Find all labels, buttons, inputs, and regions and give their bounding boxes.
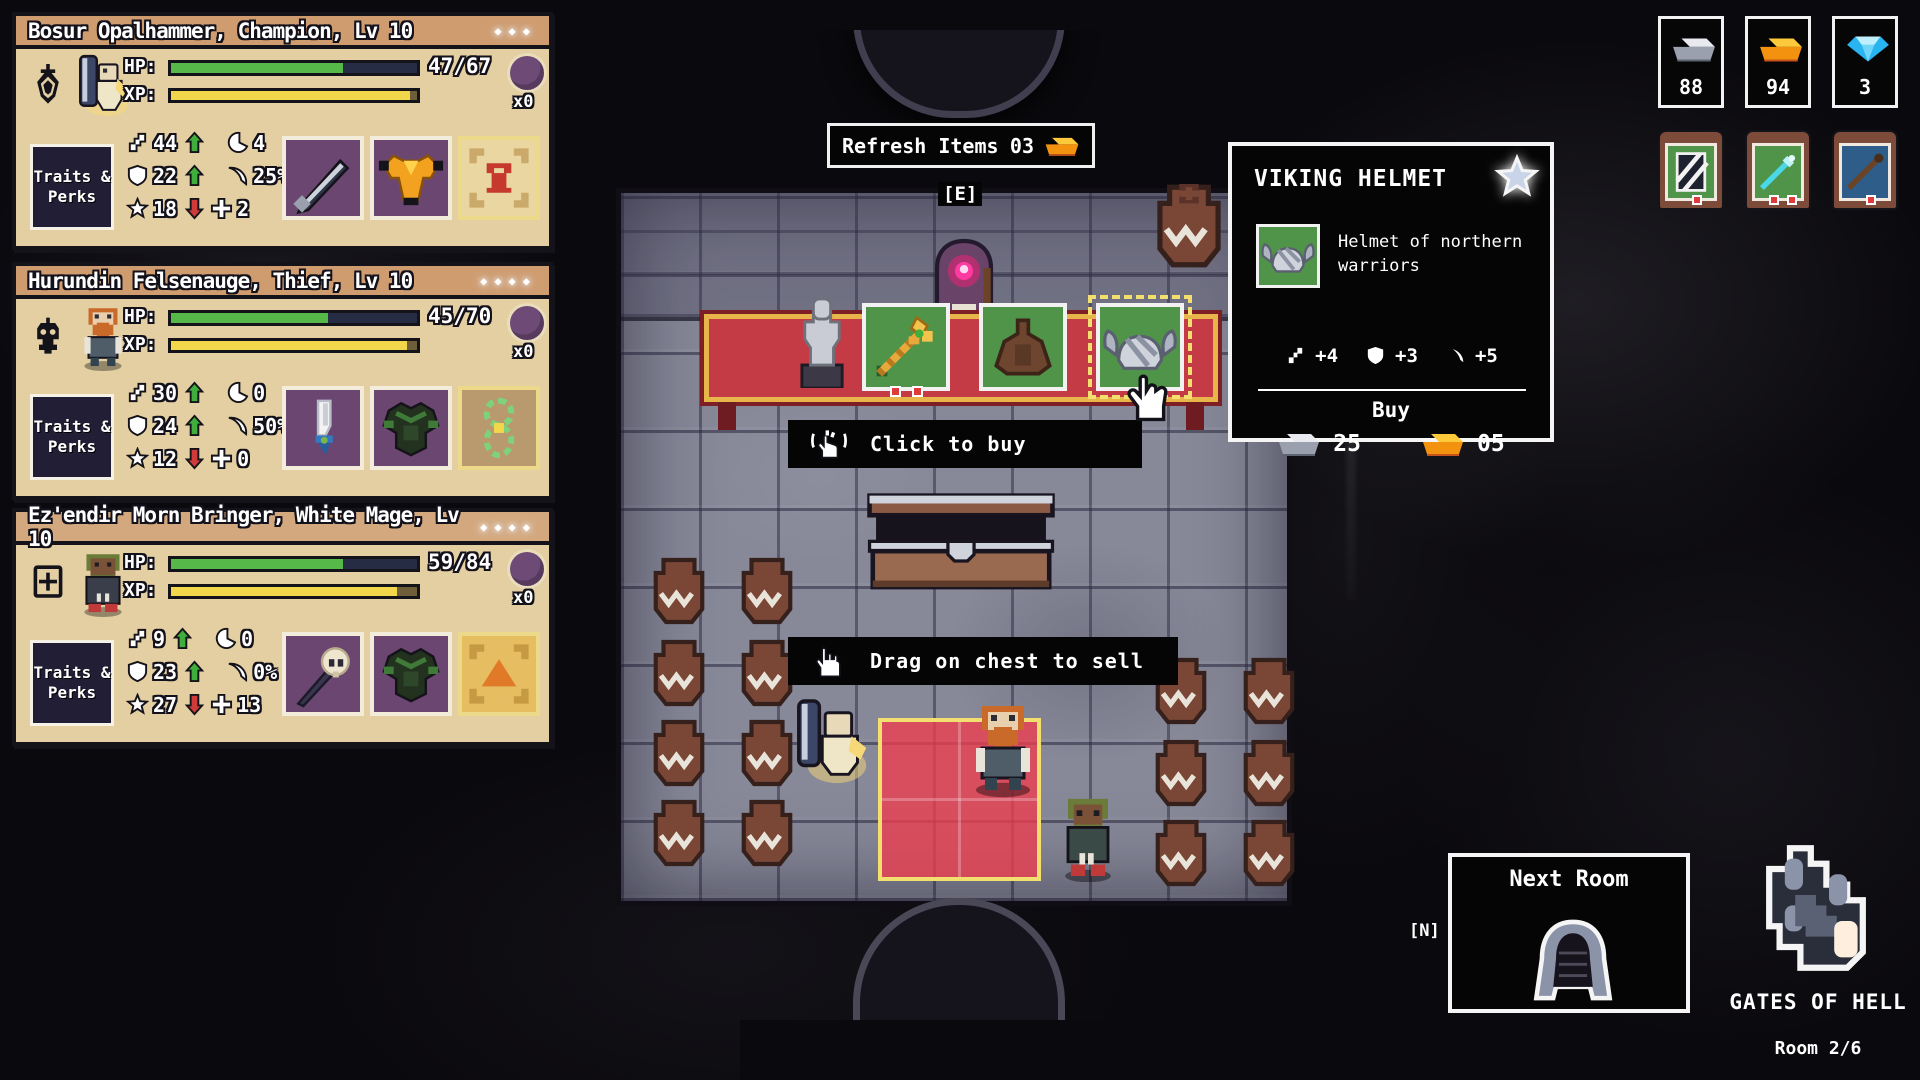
- up-arrow-icon: [183, 164, 206, 187]
- item-slot-dark-greatsword[interactable]: [282, 136, 364, 220]
- next-room-label: Next Room: [1452, 867, 1686, 892]
- crit-value: 0%: [253, 660, 277, 684]
- consumable-card-cyan-spear[interactable]: [1745, 130, 1811, 210]
- moves-value: 0: [241, 627, 253, 651]
- traits-perks-button[interactable]: Traits & Perks: [30, 144, 114, 230]
- heal-icon: [210, 693, 233, 716]
- party-panel-white-mage: Ez'endir Morn Bringer, White Mage, Lv 10…: [12, 508, 553, 746]
- diamond-icon: [1845, 31, 1891, 67]
- clay-pot[interactable]: [736, 797, 798, 869]
- down-arrow-icon: [183, 447, 206, 470]
- gates-of-hell-icon: [1764, 843, 1868, 977]
- crit-icon: [1444, 344, 1467, 367]
- defense-icon: [126, 414, 149, 437]
- traits-perks-button[interactable]: Traits & Perks: [30, 640, 114, 726]
- diamond-resource-counter: 3: [1832, 16, 1898, 108]
- viking-helmet-icon: [1259, 227, 1317, 285]
- door-arch-icon: [1525, 901, 1621, 1005]
- champion-room-sprite[interactable]: [790, 695, 878, 795]
- location-name: GATES OF HELL: [1690, 990, 1920, 1014]
- top-doorway: [853, 0, 1065, 118]
- attack-value: 44: [153, 131, 177, 155]
- tooltip-defense: +3: [1395, 345, 1418, 367]
- item-slot-white-dagger[interactable]: [282, 386, 364, 470]
- thief-room-sprite[interactable]: [958, 696, 1048, 800]
- click-hand-icon: [810, 427, 848, 461]
- shop-item-golden-staff[interactable]: [862, 303, 950, 391]
- attack-icon: [1284, 344, 1307, 367]
- tooltip-description: Helmet of northern warriors: [1338, 230, 1538, 278]
- up-arrow-icon: [183, 660, 206, 683]
- item-slot-shadow-armor[interactable]: [370, 386, 452, 470]
- heal-value: 2: [237, 197, 249, 221]
- panel-header: Hurundin Felsenauge, Thief, Lv 10 ◆◆◆◆: [16, 266, 549, 299]
- defense-icon: [126, 660, 149, 683]
- shop-item-brown-robe[interactable]: [979, 303, 1067, 391]
- clay-pot[interactable]: [1150, 817, 1212, 889]
- hp-bar: [168, 310, 420, 326]
- iron-ingot-icon: [1671, 31, 1717, 67]
- tooltip-item-viking-helmet: [1256, 224, 1320, 288]
- defense-value: 22: [153, 164, 177, 188]
- xp-label: XP:: [124, 84, 157, 105]
- charge-pip: [1769, 195, 1779, 205]
- tooltip-title: VIKING HELMET: [1254, 166, 1447, 192]
- clay-pot[interactable]: [1150, 184, 1228, 268]
- tooltip-divider: [1258, 389, 1526, 391]
- clay-pot[interactable]: [736, 717, 798, 789]
- hp-label: HP:: [124, 552, 157, 573]
- tooltip-stats: +4 +3 +5: [1232, 344, 1550, 367]
- moves-icon: [226, 131, 249, 154]
- traits-perks-button[interactable]: Traits & Perks: [30, 394, 114, 480]
- refresh-cost: 03: [1010, 134, 1034, 158]
- heal-icon: [210, 447, 233, 470]
- item-slot-skull-staff[interactable]: [282, 632, 364, 716]
- item-slot-golden-armor[interactable]: [370, 136, 452, 220]
- refresh-items-button[interactable]: Refresh Items 03: [827, 123, 1095, 168]
- sparkle-icons: ◆◆◆: [494, 24, 537, 38]
- consumable-card-brown-staff[interactable]: [1832, 130, 1898, 210]
- character-name: Ez'endir Morn Bringer, White Mage, Lv 10: [28, 503, 480, 551]
- xp-bar: [168, 88, 420, 103]
- next-room-button[interactable]: Next Room: [1448, 853, 1690, 1013]
- interact-key-hint: [E]: [938, 182, 982, 206]
- tooltip-attack: +4: [1315, 345, 1338, 367]
- down-arrow-icon: [183, 197, 206, 220]
- sparkle-icons: ◆◆◆◆: [480, 520, 537, 534]
- clay-pot[interactable]: [1150, 737, 1212, 809]
- hp-value: 45/70: [428, 304, 491, 328]
- white-mage-room-sprite[interactable]: [1048, 790, 1128, 882]
- defense-value: 24: [153, 414, 177, 438]
- favorite-star-icon[interactable]: [1494, 154, 1540, 200]
- iron-ingot-icon: [1277, 428, 1321, 460]
- sell-chest[interactable]: [863, 492, 1059, 594]
- item-slot-shadow-armor[interactable]: [370, 632, 452, 716]
- xp-bar: [168, 338, 420, 353]
- down-arrow-icon: [183, 693, 206, 716]
- clay-pot[interactable]: [1238, 655, 1300, 727]
- defense-value: 23: [153, 660, 177, 684]
- character-name: Bosur Opalhammer, Champion, Lv 10: [28, 19, 412, 43]
- cursor-hand-icon: [1122, 370, 1174, 422]
- up-arrow-icon: [171, 627, 194, 650]
- character-name: Hurundin Felsenauge, Thief, Lv 10: [28, 269, 412, 293]
- charge-pip: [1866, 195, 1876, 205]
- item-pip: [912, 386, 923, 397]
- attack-value: 9: [153, 627, 165, 651]
- up-arrow-icon: [183, 131, 206, 154]
- game-screen: Refresh Items 03 [E] Click to buy Drag o…: [0, 0, 1920, 1080]
- defense-icon: [126, 164, 149, 187]
- dodge-value: 27: [153, 693, 177, 717]
- mana-orb-icon: [510, 56, 544, 90]
- dodge-value: 12: [153, 447, 177, 471]
- heal-value: 0: [237, 447, 249, 471]
- orb-count: x0: [513, 342, 533, 362]
- dodge-value: 18: [153, 197, 177, 221]
- item-slot-red-scroll[interactable]: [458, 136, 540, 220]
- crit-icon: [226, 660, 249, 683]
- clay-pot[interactable]: [648, 797, 710, 869]
- crit-icon: [226, 414, 249, 437]
- price-gold: 05: [1477, 431, 1505, 457]
- gold-ingot-icon: [1044, 133, 1080, 159]
- hp-bar: [168, 60, 420, 76]
- display-bust: [796, 296, 848, 388]
- orb-count: x0: [513, 92, 533, 112]
- crit-icon: [226, 164, 249, 187]
- room-counter: Room 2/6: [1690, 1038, 1920, 1059]
- hp-value: 47/67: [428, 54, 491, 78]
- click-to-buy-banner: Click to buy: [788, 420, 1142, 468]
- dodge-star-icon: [126, 447, 149, 470]
- next-room-key-hint: [N]: [1404, 920, 1445, 942]
- orb-count: x0: [513, 588, 533, 608]
- diamond-count: 3: [1859, 75, 1871, 99]
- attack-icon: [126, 627, 149, 650]
- heal-icon: [210, 197, 233, 220]
- clay-pot[interactable]: [648, 555, 710, 627]
- charge-pip: [1692, 195, 1702, 205]
- moves-icon: [226, 381, 249, 404]
- tooltip-prices: 25 05: [1232, 428, 1550, 460]
- sparkle-icons: ◆◆◆◆: [480, 274, 537, 288]
- champion-class-icon: [30, 64, 66, 106]
- hp-value: 59/84: [428, 550, 491, 574]
- attack-icon: [126, 131, 149, 154]
- drag-hand-icon: [810, 644, 848, 678]
- moves-icon: [214, 627, 237, 650]
- gold-ingot-icon: [1421, 428, 1465, 460]
- heal-value: 13: [237, 693, 261, 717]
- moves-value: 4: [253, 131, 265, 155]
- hp-bar: [168, 556, 420, 572]
- gold-resource-counter: 94: [1745, 16, 1811, 108]
- party-panel-thief: Hurundin Felsenauge, Thief, Lv 10 ◆◆◆◆ H…: [12, 262, 553, 500]
- panel-header: Ez'endir Morn Bringer, White Mage, Lv 10…: [16, 512, 549, 545]
- brown-staff-icon: [1842, 146, 1888, 198]
- party-panel-champion: Bosur Opalhammer, Champion, Lv 10 ◆◆◆ HP…: [12, 12, 553, 250]
- item-slot-mountain-scroll[interactable]: [458, 632, 540, 716]
- moves-value: 0: [253, 381, 265, 405]
- clay-pot[interactable]: [648, 637, 710, 709]
- price-iron: 25: [1333, 431, 1361, 457]
- item-slot-green-rune[interactable]: [458, 386, 540, 470]
- clay-pot[interactable]: [736, 555, 798, 627]
- xp-bar: [168, 584, 420, 599]
- striped-card-icon: [1668, 146, 1714, 198]
- mana-orb-icon: [510, 306, 544, 340]
- clay-pot[interactable]: [648, 717, 710, 789]
- hp-label: HP:: [124, 56, 157, 77]
- panel-header: Bosur Opalhammer, Champion, Lv 10 ◆◆◆: [16, 16, 549, 49]
- thief-class-icon: [30, 314, 66, 356]
- hp-label: HP:: [124, 306, 157, 327]
- stat-block: 9 0 23 0% 27 13: [126, 622, 306, 721]
- item-pip: [890, 386, 901, 397]
- iron-resource-counter: 88: [1658, 16, 1724, 108]
- item-tooltip: VIKING HELMET Helmet of northern warrior…: [1228, 142, 1554, 442]
- drag-to-sell-banner: Drag on chest to sell: [788, 637, 1178, 685]
- xp-label: XP:: [124, 334, 157, 355]
- tooltip-crit: +5: [1475, 345, 1498, 367]
- white-mage-class-icon: [30, 560, 66, 602]
- xp-label: XP:: [124, 580, 157, 601]
- dodge-star-icon: [126, 693, 149, 716]
- iron-count: 88: [1679, 75, 1703, 99]
- cyan-spear-icon: [1755, 146, 1801, 198]
- charge-pip: [1787, 195, 1797, 205]
- click-to-buy-label: Click to buy: [870, 432, 1027, 456]
- mana-orb-icon: [510, 552, 544, 586]
- dodge-star-icon: [126, 197, 149, 220]
- up-arrow-icon: [183, 381, 206, 404]
- drag-to-sell-label: Drag on chest to sell: [870, 649, 1144, 673]
- gold-ingot-icon: [1758, 31, 1804, 67]
- attack-icon: [126, 381, 149, 404]
- gold-count: 94: [1766, 75, 1790, 99]
- defense-icon: [1364, 344, 1387, 367]
- clay-pot[interactable]: [1238, 817, 1300, 889]
- buy-label: Buy: [1232, 398, 1550, 422]
- refresh-label: Refresh Items: [842, 134, 1000, 158]
- up-arrow-icon: [183, 414, 206, 437]
- clay-pot[interactable]: [1238, 737, 1300, 809]
- consumable-card-striped-shield[interactable]: [1658, 130, 1724, 210]
- attack-value: 30: [153, 381, 177, 405]
- bottom-doorway: [853, 898, 1065, 1080]
